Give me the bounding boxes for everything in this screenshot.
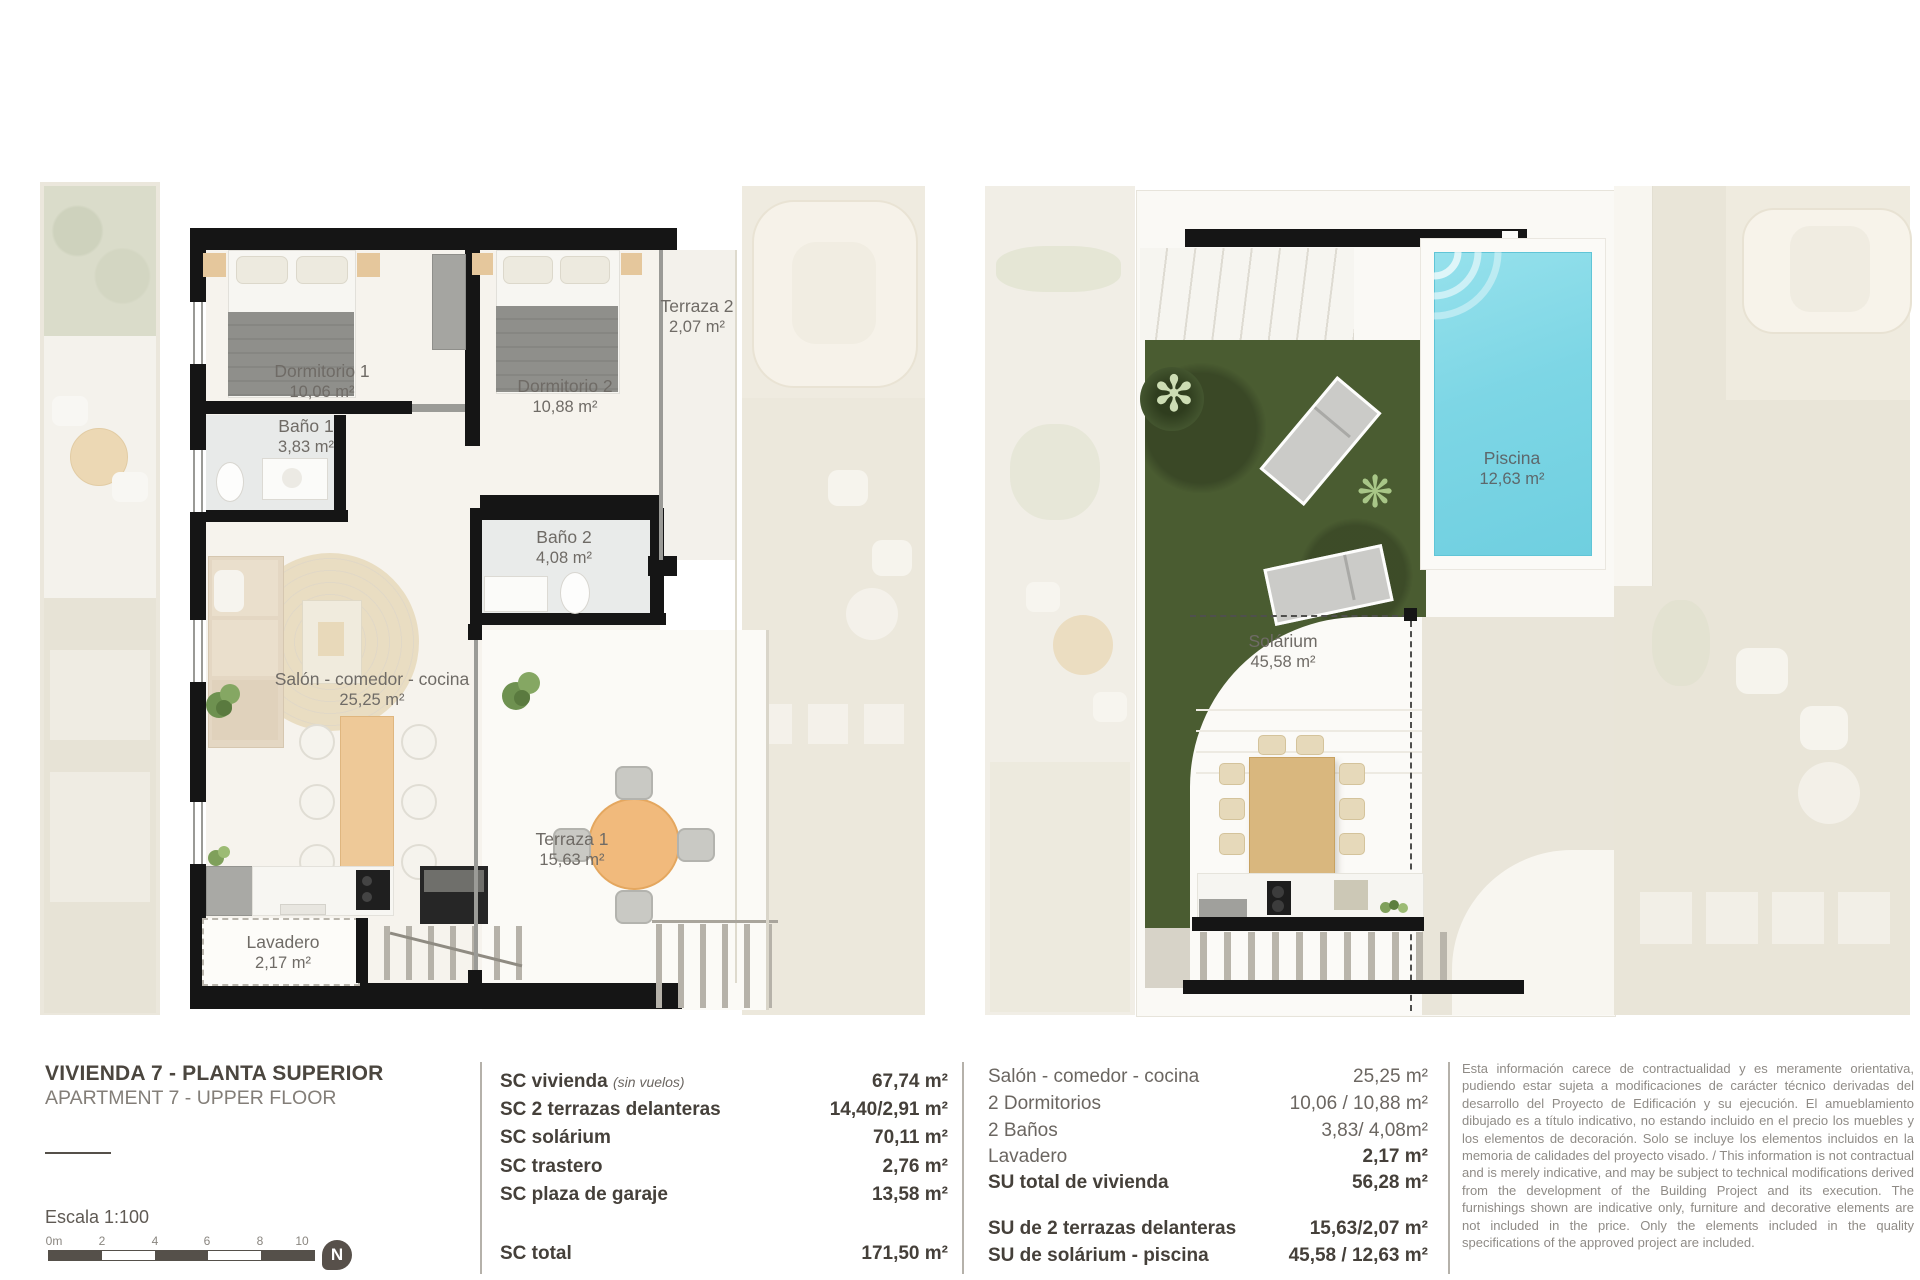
room-label-piscina: Piscina12,63 m² — [1479, 447, 1544, 490]
su-value: 10,06 / 10,88 m² — [1290, 1093, 1428, 1115]
boundary-node — [1404, 608, 1417, 621]
cooktop-burner — [362, 892, 372, 902]
wall-segment — [470, 508, 662, 520]
pillow — [236, 256, 288, 284]
su-value: 15,63/2,07 m² — [1310, 1218, 1428, 1240]
sc-note: (sin vuelos) — [613, 1074, 685, 1090]
pillow — [560, 256, 610, 284]
kitchen-sink — [280, 904, 326, 915]
roof-steps — [1140, 248, 1354, 340]
context-paver — [1706, 892, 1758, 944]
kitchen-appliance — [206, 866, 254, 916]
su-row: 2 Baños3,83/ 4,08m² — [988, 1120, 1428, 1142]
context-paver — [1838, 892, 1890, 944]
glass-door — [474, 630, 478, 978]
terrace-divider-line — [735, 250, 737, 983]
kitchen-cabinet — [1199, 899, 1247, 919]
context-table — [1798, 762, 1860, 824]
cutting-board — [1334, 880, 1368, 910]
dining-chair — [401, 784, 437, 820]
planter-plant: ✻ — [1142, 362, 1206, 426]
sc-row: SC plaza de garaje13,58 m² — [500, 1184, 948, 1206]
context-trees — [1010, 424, 1100, 520]
wall-segment — [470, 613, 666, 625]
scale-tick: 4 — [152, 1234, 159, 1248]
context-paver — [808, 704, 848, 744]
context-chair — [872, 540, 912, 576]
wall-segment — [334, 415, 346, 515]
scale-tick: 6 — [204, 1234, 211, 1248]
nightstand — [357, 253, 380, 277]
exterior-stairs — [656, 924, 776, 1008]
grill-burner — [1272, 900, 1284, 912]
page-title: VIVIENDA 7 - PLANTA SUPERIOR — [45, 1062, 384, 1086]
wardrobe — [432, 254, 466, 350]
context-block — [990, 762, 1130, 1012]
room-label-solarium: Solárium45,58 m² — [1248, 630, 1317, 673]
context-lower-room — [50, 772, 150, 902]
scale-label: Escala 1:100 — [45, 1207, 149, 1228]
plant — [208, 846, 236, 868]
terrace-edge-line — [766, 630, 769, 1010]
context-paver — [864, 704, 904, 744]
wall-segment — [1192, 917, 1424, 931]
outdoor-chair — [1339, 798, 1365, 820]
sc-total-value: 171,50 m² — [861, 1243, 948, 1265]
boundary-dashed-h — [1190, 615, 1408, 617]
flower-plant: ❋ — [1348, 466, 1402, 520]
sofa-cushion — [212, 620, 278, 676]
su-total-row: SU total de vivienda56,28 m² — [988, 1172, 1428, 1194]
coffee-table-decor — [318, 622, 344, 656]
page-subtitle: APARTMENT 7 - UPPER FLOOR — [45, 1087, 336, 1110]
context-lower-room — [50, 650, 150, 740]
context-trees — [996, 246, 1121, 292]
wall-segment — [356, 918, 368, 983]
context-chair — [828, 470, 868, 506]
footer-divider — [480, 1062, 482, 1274]
sliding-door — [412, 404, 468, 412]
context-chair — [1093, 692, 1127, 722]
dining-chair — [299, 784, 335, 820]
wall-segment — [465, 250, 480, 446]
floorplan-sheet: Dormitorio 110,06 m² Dormitorio 210,88 m… — [0, 0, 1920, 1280]
context-white-wall — [1614, 186, 1653, 586]
car-roof — [792, 242, 876, 344]
wall-segment — [190, 228, 677, 250]
room-label-lavadero: Lavadero2,17 m² — [247, 931, 320, 974]
sc-value: 2,76 m² — [883, 1156, 948, 1178]
scale-bar-segments — [48, 1250, 315, 1261]
wall-segment — [190, 983, 682, 1009]
railing — [1200, 932, 1450, 980]
staircase — [384, 926, 524, 980]
su-value: 25,25 m² — [1353, 1066, 1428, 1088]
dining-chair — [401, 724, 437, 760]
context-table — [1053, 615, 1113, 675]
cooktop — [356, 870, 390, 910]
throw-blanket — [214, 570, 244, 612]
sc-value: 14,40/2,91 m² — [830, 1099, 948, 1121]
stair-rail — [652, 920, 778, 923]
room-label-salon: Salón - comedor - cocina25,25 m² — [275, 668, 470, 711]
outdoor-dining-table — [1249, 757, 1335, 875]
plant — [206, 684, 246, 724]
nightstand — [203, 253, 226, 277]
sc-row: SC 2 terrazas delanteras14,40/2,91 m² — [500, 1099, 948, 1121]
su-extra-row: SU de 2 terrazas delanteras15,63/2,07 m² — [988, 1218, 1428, 1240]
lounger-headrest — [1343, 555, 1355, 601]
outdoor-chair — [1219, 833, 1245, 855]
toilet — [560, 572, 590, 614]
outdoor-chair — [1339, 763, 1365, 785]
scale-tick: 2 — [99, 1234, 106, 1248]
room-label-dormitorio1: Dormitorio 110,06 m² — [274, 360, 369, 403]
toilet — [216, 462, 244, 502]
sc-row: SC solárium70,11 m² — [500, 1127, 948, 1149]
sc-total-row: SC total171,50 m² — [500, 1243, 948, 1265]
outdoor-chair — [1219, 798, 1245, 820]
sc-value: 70,11 m² — [873, 1127, 948, 1149]
pillow — [296, 256, 348, 284]
wall-segment — [468, 970, 482, 984]
su-row: 2 Dormitorios10,06 / 10,88 m² — [988, 1093, 1428, 1115]
footer-divider — [1448, 1062, 1450, 1274]
sc-value: 67,74 m² — [872, 1071, 948, 1093]
context-chair — [52, 396, 88, 426]
su-value: 3,83/ 4,08m² — [1321, 1120, 1428, 1142]
context-hedge — [44, 186, 156, 336]
context-trees — [1652, 600, 1710, 686]
context-chair — [1026, 582, 1060, 612]
pillow — [503, 256, 553, 284]
footer-divider — [962, 1062, 964, 1274]
sink — [484, 576, 548, 612]
sink-basin — [282, 468, 302, 488]
nightstand — [621, 253, 642, 275]
room-label-bano1: Baño 13,83 m² — [278, 415, 334, 458]
su-total-value: 56,28 m² — [1352, 1172, 1428, 1194]
room-label-dormitorio2: Dormitorio 210,88 m² — [517, 375, 612, 418]
cooktop-burner — [362, 876, 372, 886]
plant — [502, 672, 546, 716]
wall-segment — [1183, 980, 1524, 994]
su-extra-row: SU de solárium - piscina45,58 / 12,63 m² — [988, 1245, 1428, 1267]
outdoor-chair — [1219, 763, 1245, 785]
grill-burner — [1272, 886, 1284, 898]
wall-segment — [470, 520, 482, 613]
garden-path — [1145, 928, 1192, 988]
terrace-chair — [615, 766, 653, 800]
su-row: Lavadero2,17 m² — [988, 1146, 1428, 1168]
nightstand — [472, 253, 493, 275]
window — [190, 450, 206, 512]
outdoor-chair — [1258, 735, 1286, 755]
terrace-chair — [615, 890, 653, 924]
room-label-terraza2: Terraza 22,07 m² — [661, 295, 734, 338]
north-compass-icon: N — [322, 1240, 352, 1270]
wall-segment — [480, 495, 662, 508]
scale-tick: 10 — [295, 1234, 308, 1248]
legal-disclaimer: Esta información carece de contractualid… — [1462, 1060, 1914, 1251]
terrace-chair — [677, 828, 715, 862]
su-value: 45,58 / 12,63 m² — [1289, 1245, 1428, 1267]
context-paver — [1772, 892, 1824, 944]
context-chair — [1800, 706, 1848, 750]
car-roof — [1790, 226, 1870, 312]
sc-value: 13,58 m² — [872, 1184, 948, 1206]
window — [190, 620, 206, 682]
wall-segment — [468, 624, 482, 640]
scale-tick: 8 — [257, 1234, 264, 1248]
context-chair — [112, 472, 148, 502]
sc-row: SC vivienda (sin vuelos) 67,74 m² — [500, 1071, 948, 1093]
scale-tick: 0m — [46, 1234, 63, 1248]
context-table — [846, 588, 898, 640]
outdoor-chair — [1296, 735, 1324, 755]
su-row: Salón - comedor - cocina25,25 m² — [988, 1066, 1428, 1088]
lounger-headrest — [1314, 406, 1351, 438]
wall-segment — [206, 510, 348, 522]
outdoor-chair — [1339, 833, 1365, 855]
window — [190, 302, 206, 364]
room-label-bano2: Baño 24,08 m² — [536, 526, 592, 569]
context-chair — [1736, 648, 1788, 694]
dining-chair — [299, 724, 335, 760]
su-value: 2,17 m² — [1363, 1146, 1428, 1168]
context-paver — [1640, 892, 1692, 944]
sc-row: SC trastero2,76 m² — [500, 1156, 948, 1178]
window — [190, 802, 206, 864]
room-label-terraza1: Terraza 115,63 m² — [536, 828, 609, 871]
title-divider — [45, 1152, 111, 1154]
plant — [1380, 900, 1410, 914]
pool-steps-arcs — [1434, 252, 1526, 344]
